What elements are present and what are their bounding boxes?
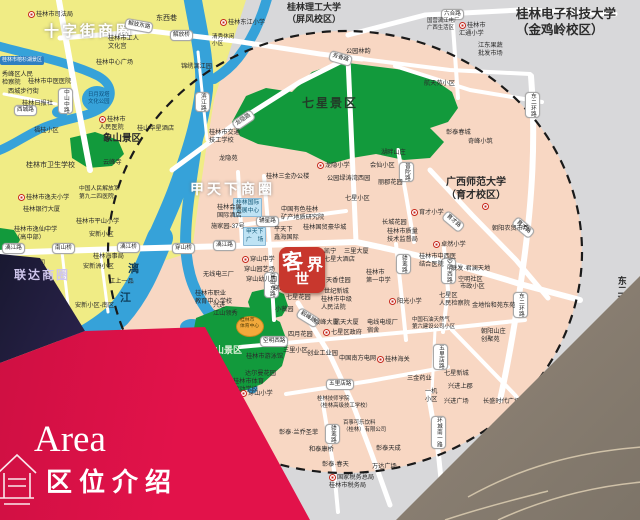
map-label: 穿山园艺场 <box>244 266 275 274</box>
map-label: 福桂小区 <box>34 127 59 135</box>
map-label: 桂林东江小学 <box>220 19 265 27</box>
map-label: 三里小区 <box>283 347 308 355</box>
map-label: 桂林市 体育中心 <box>240 318 259 330</box>
map-label: 万达广场 <box>372 463 397 471</box>
map-label: 国家税务总局 桂林市税务局 <box>329 474 374 490</box>
map-label: 七星小区 <box>345 195 370 203</box>
map-label: 桂林国贸豪华城 <box>303 224 346 232</box>
map-label: 桂林中心广场 <box>96 59 133 67</box>
map-label: 公园林韵 <box>346 48 371 56</box>
business-circle-label: 甲天下商圈 <box>190 180 275 198</box>
road-label: 中山中路 <box>58 88 73 114</box>
map-label: 漓 <box>128 262 139 276</box>
map-label: 天香佳园 <box>326 277 351 285</box>
map-label: 桂林市质量 技术监督局 <box>387 228 418 244</box>
lianda-business-circle-label: 联达商圈 <box>14 266 70 283</box>
road-label: 育才路 <box>441 210 465 233</box>
road-label: 漓江桥 <box>117 242 140 253</box>
map-label: 龙隐小学 <box>317 162 350 170</box>
map-label: 阳光小学 <box>389 298 422 306</box>
map-label: 日月双塔 文化公园 <box>88 92 110 106</box>
poi-marker-icon <box>482 203 489 210</box>
map-label: 穿山小学 <box>240 390 273 398</box>
map-label: 和泰康桥 <box>309 446 334 454</box>
road-label: 漓江路 <box>213 240 236 251</box>
road-label: 骖鸾路 <box>325 424 340 444</box>
map-label: 彰泰天成 <box>376 445 401 453</box>
map-label: 兴进广场 <box>444 398 469 406</box>
road-label: 骖鸾路 <box>396 254 411 274</box>
map-label: 桂林市司法局 <box>28 11 73 19</box>
map-label: 安新小区-南区 <box>75 302 114 310</box>
map-label: 七星景区 <box>302 96 358 112</box>
map-label: 联发·君澜天地 <box>451 265 490 273</box>
poi-marker-icon <box>28 11 35 18</box>
poi-marker-icon <box>220 19 227 26</box>
map-label: 国营漓江电厂 广西生活区 <box>427 18 459 32</box>
road-label: 漓江路 <box>2 243 25 254</box>
map-label: 清秀休闲 小区 <box>212 34 234 49</box>
map-label: 会仙小区 <box>370 162 395 170</box>
poi-marker-icon <box>317 162 324 169</box>
banner-title-zh: 区位介绍 <box>46 462 178 499</box>
map-label: 彰泰春城 <box>446 129 471 137</box>
map-label: 甲天下 广 场 <box>243 227 266 246</box>
map-label: 桂林银行大厦 <box>23 206 60 214</box>
poi-marker-icon <box>242 256 249 263</box>
map-label: 奇峰小筑 <box>468 138 493 146</box>
map-label: 龙隐苑 <box>219 155 238 163</box>
banner-title-en: Area <box>34 418 106 461</box>
road-label: 五里店路 <box>433 344 448 370</box>
map-label: 桂林会展 国际酒店 <box>217 204 242 220</box>
map-label: 桂林三金办公楼 <box>266 173 309 181</box>
road-label: 环城南一路 <box>431 416 446 449</box>
map-label: 湖畔山庄 <box>381 149 406 157</box>
map-label: 市政小区 <box>460 283 485 291</box>
map-label: 桂林市平山小学 <box>76 218 119 226</box>
map-label: 达尔曼花园 <box>245 370 276 378</box>
map-label: 彰泰·春天 <box>322 461 349 469</box>
road-label: 东二环路 <box>525 92 540 118</box>
road-label: 滨江路 <box>195 92 210 112</box>
road-label: 解放桥 <box>170 30 193 41</box>
map-label: 江东果蔬 批发市场 <box>478 42 503 58</box>
map-label: 西城步行街 <box>8 88 39 96</box>
map-label: 江上一品 <box>109 278 134 286</box>
poi-marker-icon <box>323 329 330 336</box>
map-label: 兴进上郡 <box>448 383 473 391</box>
pavilion-icon <box>0 446 38 514</box>
poi-marker-icon <box>99 116 106 123</box>
map-label: 桂山华星酒店 <box>137 125 174 133</box>
map-label: 东西巷 <box>156 14 177 23</box>
map-label: 穿山中学 <box>242 256 275 264</box>
map-label: 桂林市中级 人民法院 <box>321 296 352 312</box>
map-label: 金地怡和苑东苑 <box>472 302 515 310</box>
map-label: 丽郡花园 <box>378 179 403 187</box>
map-label: 一机 小区 <box>425 388 437 404</box>
poi-marker-icon <box>389 298 396 305</box>
map-label: 锦绣漓江园 <box>181 63 212 71</box>
map-label: 桂林技师学院 （桂林高级技工学校） <box>317 396 371 410</box>
map-label: 桂林市交通 技工学校 <box>209 129 240 145</box>
road-label: 空明西路 <box>260 336 288 347</box>
map-label: 无线电三厂 <box>203 271 234 279</box>
map-label: 世纪新城 <box>324 288 349 296</box>
map-label: 桂林海关 <box>377 356 410 364</box>
map-label: 长城花园 <box>382 219 407 227</box>
map-label: 百事可乐饮料 （桂林）有限公司 <box>343 420 386 434</box>
map-label: 电线电缆厂 宿舍 <box>367 319 398 335</box>
map-label: 安新洲小区 <box>83 263 114 271</box>
map-label: 朝阳山庄 创聚苑 <box>481 328 506 344</box>
map-label: 彰泰·兰乔圣菲 <box>279 429 318 437</box>
map-label: 中国人民解放军 第九二四医院 <box>79 186 120 201</box>
map-label: 卓然小学 <box>433 241 466 249</box>
map-label: 中国有色桂林 矿产地质研究院 <box>281 206 324 222</box>
map-label: 三金药业 <box>407 375 432 383</box>
map-label: 七星花园 <box>286 294 311 302</box>
map-label: 桂林市 汇通小学 <box>459 22 486 38</box>
map-label: 三里大厦 <box>344 248 369 256</box>
poi-marker-icon <box>329 474 336 481</box>
map-label: 航天大厦 <box>334 319 359 327</box>
map-label: 公园绿涛湾西园 <box>327 175 370 183</box>
map-label: 广西师范大学 （育才校区） <box>446 176 506 202</box>
map-label: 安新小区 <box>89 231 114 239</box>
map-label: 桂林海事局 <box>93 253 124 261</box>
map-label: 桂林市卫生学校 <box>26 161 75 170</box>
project-logo: 客 世 界 <box>279 247 325 293</box>
poi-marker-icon <box>433 241 440 248</box>
poi-marker-icon <box>459 22 466 29</box>
map-label: 桂林市工人 文化宫 <box>108 35 139 51</box>
road-label: 龙隐路 <box>231 109 256 131</box>
map-label: 中国南方电网 <box>339 355 376 363</box>
map-label: 七星区政府 <box>323 329 362 337</box>
map-label: 七星新城 <box>444 370 469 378</box>
map-label: 桂林市逸仙中学 （高中部） <box>14 226 57 242</box>
poi-marker-icon <box>18 194 25 201</box>
map-label: 四月花园 <box>288 331 313 339</box>
map-label: 桂林日报社 <box>22 100 53 108</box>
map-label: 桂林市中医医院 <box>28 78 71 86</box>
map-label: 朝阳农贸市场 <box>492 225 529 233</box>
map-label: 象山景区 <box>103 133 141 145</box>
map-label: 兴进 江山领秀 <box>213 302 238 318</box>
road-label: 穿山桥 <box>172 243 195 254</box>
map-label: 创业工业园 <box>307 350 338 358</box>
map-label: 中国石油天然气 第六建设公司小区 <box>412 317 455 331</box>
map-label: 航天苑小区 <box>424 80 455 88</box>
road-label: 五里店路 <box>326 379 354 390</box>
map-label: 施家园-37号 <box>211 223 245 231</box>
map-label: 桂林电子科技大学 （金鸡岭校区） <box>516 6 616 39</box>
map-label: 七星区 人民检察院 <box>439 292 470 308</box>
map-label: 小薇园 <box>275 306 294 314</box>
map-label: 桂林市榕杉湖景区 <box>0 56 44 65</box>
map-label: 桂林理工大学 （屏风校区） <box>287 2 341 25</box>
map-label <box>482 203 490 211</box>
map-label: 桂林市 人民医院 <box>99 116 126 132</box>
map-label: 育才小学 <box>411 209 444 217</box>
map-label: 桂林市逸夫小学 <box>18 194 69 202</box>
map-label: 桂林市游泳馆 <box>246 353 283 361</box>
map-label: 平天下 鑫海国际 <box>274 226 299 242</box>
road-label: 南山桥 <box>52 243 75 254</box>
map-label: 云峰寺 <box>103 159 122 167</box>
location-map-page: 十字街商圈甲天下商圈七星景区穿山景区象山景区漓江桂林电子科技大学 （金鸡岭校区）… <box>0 0 640 520</box>
logo-char-3: 界 <box>307 251 323 275</box>
map-label: 穿山幼儿园 <box>246 276 277 284</box>
map-label: 江 <box>120 291 131 305</box>
map-label: 桂林市 第一中学 <box>366 269 391 285</box>
poi-marker-icon <box>411 209 418 216</box>
poi-marker-icon <box>377 356 384 363</box>
